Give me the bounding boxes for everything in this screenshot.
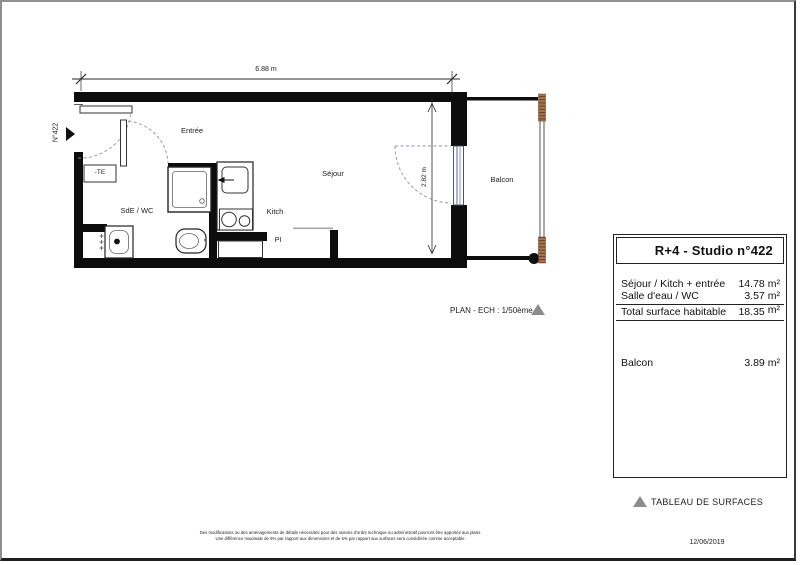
balcony-window [451,146,467,205]
wall-kitchen-bar [215,232,267,241]
bathroom-sink [100,226,134,258]
table-separator [616,304,784,305]
table-row: Salle d'eau / WC 3.57m² [621,290,780,302]
disclaimer-text: Des modifications ou des aménagements de… [180,530,500,542]
scale-triangle-icon [531,304,545,315]
table-row: Balcon 3.89m² [621,357,780,369]
wall-left-stub [83,224,107,232]
date-label: 12/06/2019 [677,539,737,546]
room-label-pi: PI [269,237,287,244]
wall-top [74,92,467,102]
wall-right-lower [451,203,467,258]
railing-wood-top [539,94,546,121]
balcony-top-line [467,97,538,101]
entrance-arrow-icon [66,127,75,141]
wall-bottom [74,258,467,268]
wall-pi-right [330,230,338,258]
surface-table-caption: TABLEAU DE SURFACES [651,497,763,507]
surface-table-title: R+4 - Studio n°422 [616,237,784,264]
dimension-height-label: 2.82 m [421,156,431,198]
room-label-sde-wc: SdE / WC [107,206,167,215]
room-label-te: -TE [84,169,116,176]
entry-door-leaf [80,106,132,113]
caption-triangle-icon [633,496,647,507]
balcony-post [529,253,540,264]
room-label-entree: Entrée [162,126,222,135]
dimension-width-label: 6.88 m [236,66,296,73]
room-label-sejour: Séjour [303,169,363,178]
table-row: Séjour / Kitch + entrée 14.78m² [621,278,780,290]
plan-scale-label: PLAN - ECH : 1/50ème [450,306,533,315]
sde-door-leaf [121,120,127,166]
placard-front-line [293,228,333,230]
disclaimer-line-2: Une différence maximale de 5% par rappor… [180,536,500,542]
room-label-balcon: Balcon [472,175,532,184]
doors [78,109,451,203]
shower [168,167,211,212]
balcony-bottom-line [467,256,531,260]
wall-left [74,152,83,268]
unit-number-label: N°422 [53,111,64,155]
wall-right-upper [451,102,467,148]
table-row-total: Total surface habitable 18.35m² [621,306,780,318]
surface-table: R+4 - Studio n°422 Séjour / Kitch + entr… [613,234,787,478]
table-separator [616,320,784,321]
railing-wood-bottom [539,237,546,263]
pi-niche-box [219,241,263,258]
kitchen-unit [217,162,253,230]
room-label-kitch: Kitch [245,207,305,216]
toilet [176,229,207,253]
